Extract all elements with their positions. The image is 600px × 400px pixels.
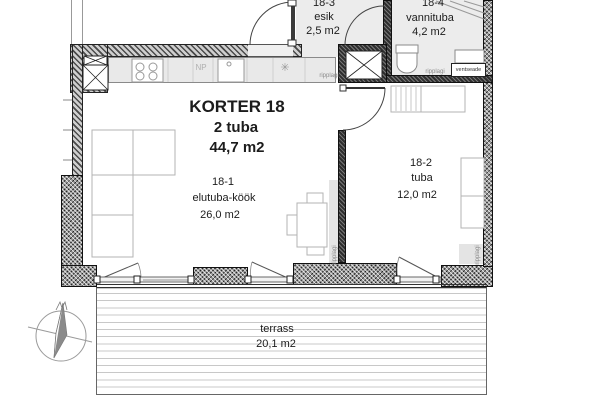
dining-table — [297, 203, 327, 247]
chair — [307, 193, 323, 203]
washer-icon — [455, 50, 484, 63]
ripplagi-label-vertical: ripplagi — [332, 245, 338, 264]
door-hinge-block — [340, 85, 346, 91]
room-18-4-area: 4,2 m2 — [412, 26, 446, 38]
snowflake-icon: ✳ — [280, 62, 289, 74]
entry-door-leaf — [291, 2, 295, 44]
apartment-area: 44,7 m2 — [209, 140, 264, 157]
wardrobe — [391, 86, 465, 112]
sink-icon — [218, 59, 244, 82]
shower-corner-lines — [450, 1, 484, 13]
chair — [287, 215, 297, 235]
ripplagi-label-vertical: ripplagi — [475, 245, 481, 264]
ripplagi-label: ripplagi — [319, 73, 338, 80]
ventseade-unit: ventseade — [451, 63, 486, 77]
window-mullion — [94, 276, 100, 283]
balcony-door-leaf-3 — [399, 257, 437, 277]
window-mullion — [433, 276, 439, 283]
room-18-1-number: 18-1 — [212, 176, 234, 188]
terrace-area: 20,1 m2 — [256, 338, 296, 350]
balcony-door-leaf-2 — [252, 262, 290, 279]
window-mullion — [188, 276, 194, 283]
apartment-rooms: 2 tuba — [214, 120, 258, 137]
room-18-1-name: elutuba-köök — [193, 192, 256, 204]
window-mullion — [134, 276, 140, 283]
shower-corner-lines — [464, 1, 484, 7]
window-mullion — [394, 276, 400, 283]
apartment-title: KORTER 18 — [189, 98, 284, 117]
entry-door-arc — [250, 2, 293, 45]
room-18-3-area: 2,5 m2 — [306, 25, 340, 37]
ripplagi-label: ripplagi — [425, 69, 444, 76]
door-hinge-block — [288, 40, 296, 46]
room-18-2-area: 12,0 m2 — [397, 189, 437, 201]
bedroom-door-arc — [343, 88, 385, 130]
room-18-2-number: 18-2 — [410, 157, 432, 169]
door-hinge-block — [288, 0, 296, 6]
window-sill-2 — [248, 277, 293, 282]
window-sill-1 — [97, 277, 193, 282]
bathroom-door-arc — [345, 6, 384, 45]
room-18-4-number: 18-4 — [422, 0, 444, 9]
dishwasher-np-label: NP — [195, 64, 206, 73]
room-18-4-name: vannituba — [406, 12, 454, 24]
floor-plan: KORTER 18 2 tuba 44,7 m2 18-1 elutuba-kö… — [0, 0, 600, 400]
terrace-name: terrass — [260, 323, 294, 335]
bed — [461, 158, 484, 228]
chair — [307, 247, 324, 255]
window-mullion — [245, 276, 251, 283]
room-18-2-name: tuba — [411, 172, 432, 184]
room-18-1-area: 26,0 m2 — [200, 209, 240, 221]
window-mullion — [287, 276, 293, 283]
room-18-3-name: esik — [314, 11, 334, 23]
toilet-tank — [396, 45, 418, 53]
toilet-bowl — [397, 53, 417, 73]
plan-strokes — [0, 0, 600, 400]
room-18-3-number: 18-3 — [313, 0, 335, 9]
compass-icon — [28, 302, 92, 361]
